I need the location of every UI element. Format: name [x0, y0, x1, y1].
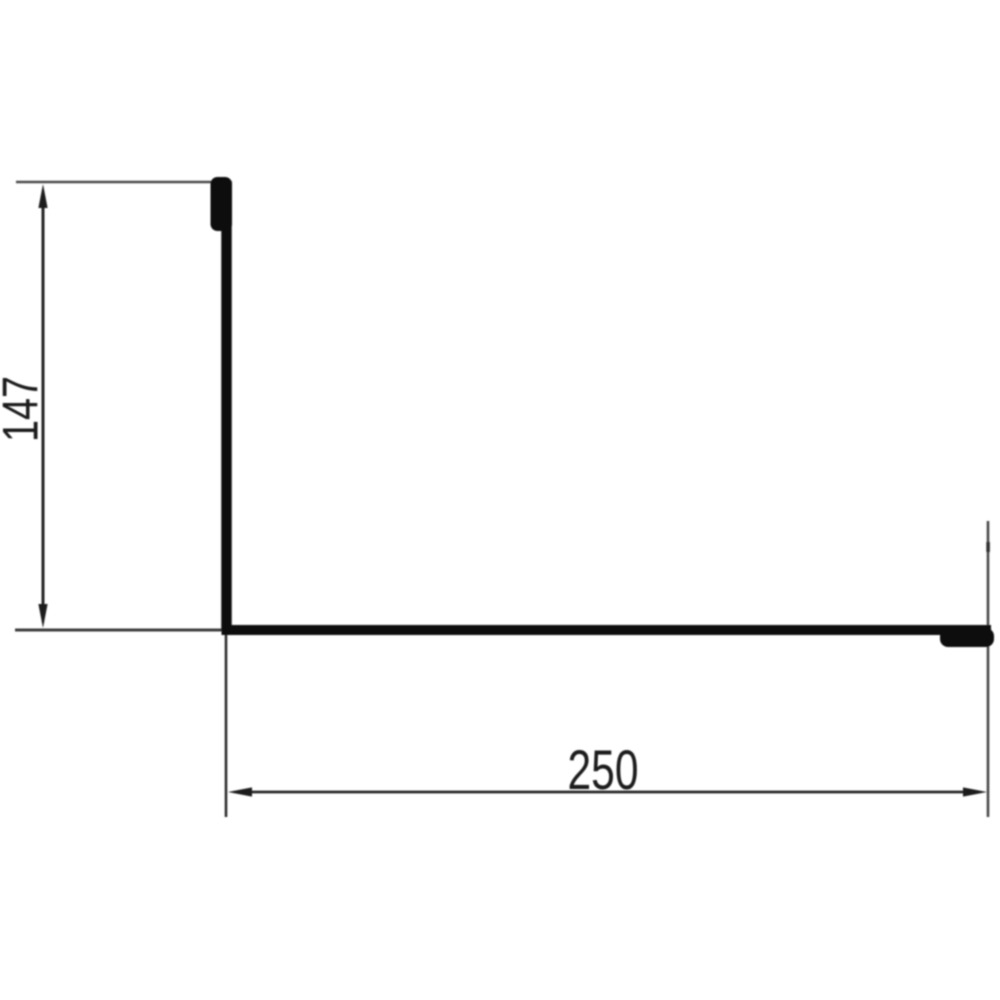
svg-text:250: 250: [568, 738, 639, 801]
svg-text:147: 147: [0, 376, 49, 442]
